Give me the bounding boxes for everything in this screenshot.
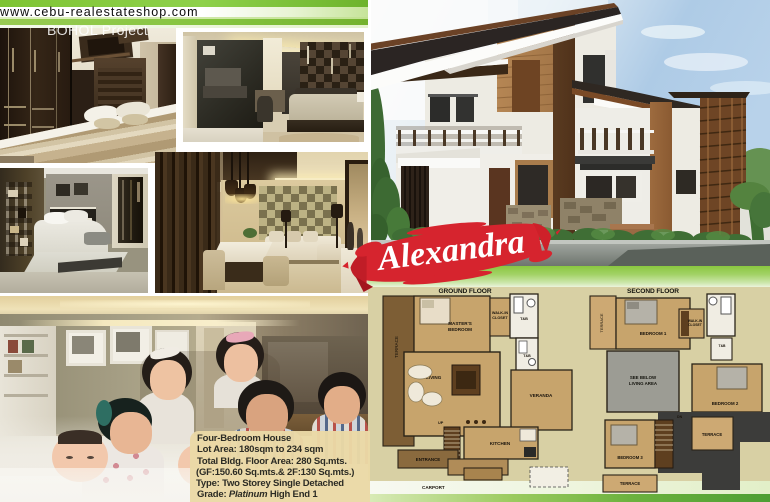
svg-text:TERRACE: TERRACE [394,336,399,358]
svg-text:DN: DN [677,415,683,419]
svg-text:BEDROOM 3: BEDROOM 3 [617,455,643,460]
svg-text:VERANDA: VERANDA [530,393,553,398]
svg-text:BEDROOM: BEDROOM [448,327,472,332]
svg-text:TERRACE: TERRACE [702,432,722,437]
svg-text:ENTRANCE: ENTRANCE [416,457,440,462]
svg-text:BEDROOM 1: BEDROOM 1 [640,331,667,336]
svg-text:LIVING AREA: LIVING AREA [629,381,658,386]
svg-text:WALK-IN: WALK-IN [492,311,508,315]
svg-text:TERRACE: TERRACE [599,313,604,332]
svg-text:BEDROOM 2: BEDROOM 2 [712,401,739,406]
svg-text:SECOND FLOOR: SECOND FLOOR [627,288,679,295]
svg-text:T&B: T&B [523,354,531,358]
svg-text:CLOSET: CLOSET [492,316,508,320]
svg-text:T&B: T&B [520,317,528,321]
svg-text:MASTER'S: MASTER'S [448,321,472,326]
svg-text:KITCHEN: KITCHEN [490,441,511,446]
svg-text:CLOSET: CLOSET [688,323,703,327]
svg-text:T&B: T&B [719,344,727,348]
svg-text:TERRACE: TERRACE [620,481,640,486]
svg-text:CARPORT: CARPORT [422,485,445,490]
svg-text:SEE BELOW: SEE BELOW [630,375,657,380]
svg-text:UP: UP [438,421,444,425]
